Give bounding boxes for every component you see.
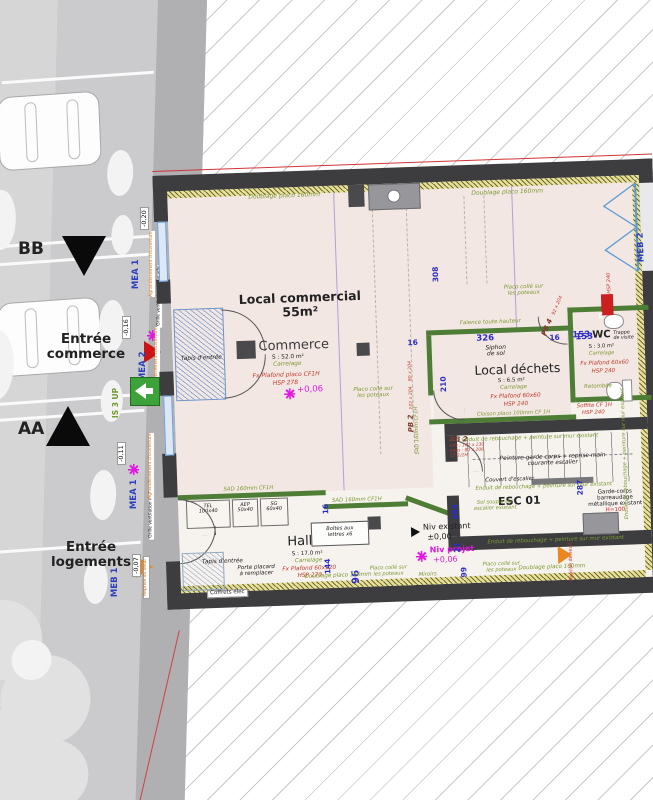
- facade-label-mea1-top: MEA 1: [132, 259, 141, 289]
- siphon-note: Siphon de sol: [471, 344, 521, 359]
- niv-existant-label: Niv existant: [423, 522, 471, 532]
- window-mea1-low: [163, 395, 174, 455]
- level-marker-icon: [416, 551, 427, 562]
- facade-label-meb1: MEB 1: [111, 568, 120, 598]
- retombee-note: Retombée: [584, 384, 612, 391]
- window-meb2-casement-icon: [601, 183, 640, 272]
- dim-16: 16: [322, 504, 330, 515]
- trappe-note: Trappe de visite: [613, 330, 634, 341]
- niv-existant-value: ±0,00: [427, 533, 452, 542]
- arrow-stem: [145, 388, 153, 394]
- section-label-aa: AA: [18, 420, 44, 438]
- section-aa-triangle-icon: [46, 406, 90, 446]
- level-marker-icon: [284, 388, 295, 399]
- section-label-bb: BB: [18, 240, 44, 258]
- entree-commerce-line2: commerce: [47, 346, 125, 362]
- window-mea1-top: [157, 222, 168, 282]
- dim-210: 210: [440, 376, 449, 392]
- miroirs-note: Miroirs: [419, 572, 437, 578]
- dim-16: 16: [549, 334, 560, 342]
- facade-label-meb2: MEB 2: [637, 232, 647, 262]
- site-plan-canvas: BB AA Entrée commerce -0,16 Entrée logem…: [0, 0, 653, 800]
- door-label-pb2: PB 2 102 x 204 80 x 204: [397, 361, 417, 433]
- level-marker-icon: [128, 464, 139, 475]
- building-floor-plan: MEB 2 Soffite HSP 240 Tapis d'entrée TEL…: [152, 145, 653, 632]
- boites-label2: lettres x6: [328, 531, 353, 538]
- commerce-floor-note: Carrelage: [273, 361, 302, 368]
- level-020: -0,20: [140, 207, 149, 230]
- commerce-title: Local commercial 55m²: [235, 289, 366, 321]
- dechets-floor-note: Carrelage: [500, 385, 527, 392]
- hall-floor-note: Carrelage: [295, 557, 323, 564]
- column: [348, 185, 365, 208]
- dim-16: 16: [407, 339, 418, 347]
- soffite-hsp-note: HSP 240: [582, 410, 605, 417]
- room-name-dechets: Local déchets: [474, 361, 560, 377]
- agrandissement-label: Agrandissement d'ouverture: [149, 433, 154, 499]
- facade-pier: [159, 371, 174, 395]
- porte-placard-note: Porte placard à remplacer: [228, 564, 284, 578]
- facade-label-mea1-low: MEA 1: [130, 479, 139, 509]
- facade-pier: [166, 561, 182, 609]
- room-name-wc: WC: [592, 330, 611, 341]
- dim-308: 308: [432, 266, 441, 282]
- dim-326: 326: [476, 334, 494, 344]
- car-rear-window: [66, 99, 81, 160]
- coffrets-elec-label: Coffrets élec: [207, 589, 248, 598]
- siphon-l2: de sol: [487, 350, 505, 358]
- level-007: -0,07: [132, 554, 141, 577]
- pb2-name: PB 2: [407, 414, 416, 432]
- room-name-commerce: Commerce: [258, 338, 329, 354]
- section-bb-triangle-icon: [62, 236, 106, 276]
- niv-projet-value: +0,06: [433, 556, 458, 565]
- placo-note-l2: les poteaux: [486, 566, 516, 573]
- dim-384: 384: [451, 504, 460, 520]
- washbasin: [604, 314, 625, 330]
- pb2-dim2: 80 x 204: [408, 361, 414, 381]
- closet-aep-label2: 50x40: [237, 507, 253, 514]
- placo-poteaux-note: Placo collé sur les poteaux: [342, 386, 404, 400]
- dechets-hsp-note: HSP 240: [504, 401, 529, 408]
- level-011: -0,11: [117, 442, 126, 465]
- closet-sg: SG 60x40: [260, 497, 289, 526]
- car-windshield: [24, 102, 39, 163]
- placo-note-l2: les poteaux: [357, 392, 389, 399]
- facade-pier: [152, 176, 168, 222]
- room-name-hall: Hall: [287, 535, 312, 550]
- door-label-pb2b: PB 2 vds : 102 x 230 pass : 80 x 206 CF …: [449, 427, 484, 460]
- commerce-title-line2: 55m²: [282, 303, 318, 319]
- facade-pier: [162, 453, 178, 497]
- sol-souple-note: Sol souple sur escalier existant: [470, 499, 520, 512]
- entree-logements-label: Entrée logements: [36, 540, 146, 569]
- wc-hsp-note: HSP 240: [591, 368, 615, 375]
- existing-duct-box: [583, 512, 620, 535]
- sol-souple-l2: escalier existant: [474, 504, 517, 511]
- placo-note-l2: les poteaux: [373, 570, 403, 577]
- trappe-l2: de visite: [613, 335, 634, 341]
- placo-poteaux-note: Placo collé sur les poteaux: [493, 284, 555, 298]
- hall-surface: S : 17.0 m²: [292, 550, 323, 557]
- placo-note-l2: les poteaux: [508, 289, 540, 296]
- placard-l2: à remplacer: [239, 570, 273, 577]
- mailboxes: Boîtes aux lettres x6: [311, 521, 370, 547]
- wc-floor-note: Carrelage: [589, 351, 615, 357]
- entrance-mat-hall: [182, 552, 225, 591]
- commerce-level: +0,06: [297, 385, 323, 395]
- dim-21: 21: [453, 542, 461, 553]
- level-016: -0,16: [122, 316, 131, 339]
- column: [368, 516, 381, 529]
- pb2-dim1: 102 x 204: [409, 386, 415, 409]
- garde-corps-note: Garde-corps barreaudage métallique exist…: [584, 488, 647, 514]
- facade-pier: [156, 279, 171, 303]
- parked-car: [0, 91, 102, 172]
- is-3-up-label: IS 3 UP: [112, 388, 120, 418]
- reprise-du-seuil-label: Reprise du seuil: [143, 556, 150, 599]
- closet-sg-label2: 60x40: [266, 506, 282, 513]
- dim-144: 144: [324, 558, 333, 574]
- exit-arrow-icon: [130, 377, 160, 406]
- bl-box: BL: [601, 294, 614, 315]
- commerce-hsp-note: HSP 278: [273, 380, 299, 387]
- niv-existant-marker-icon: [411, 527, 420, 537]
- dim-153-wc: 153: [575, 333, 593, 343]
- column: [356, 343, 369, 356]
- dim-99: 99: [460, 567, 468, 578]
- bl-label: BL: [599, 312, 605, 319]
- closet-aep: AEP 50x40: [232, 499, 259, 528]
